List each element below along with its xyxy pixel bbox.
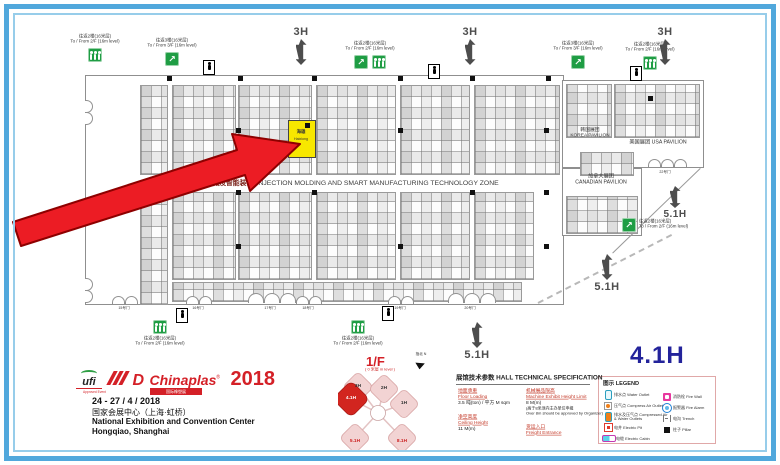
- hall-marker-51h-2: 5.1H: [590, 254, 624, 293]
- up-down-arrow-icon: [602, 254, 613, 280]
- stairs-people-icon: [372, 55, 386, 69]
- elevator-icon: [203, 60, 215, 75]
- logo-cn-strip-text: 国际橡塑展: [166, 389, 186, 395]
- esc-label-en: To / From 3/F (16m level): [553, 45, 602, 50]
- highlight-arrow: [2, 122, 312, 262]
- logo-year: 2018: [231, 368, 276, 390]
- door-label: 19号门: [394, 306, 405, 310]
- door-label: 16号门: [192, 306, 203, 310]
- door-17: [248, 293, 296, 303]
- floor-plan-page: 注塑机械及智能装备INJECTION MOLDING AND SMART MAN…: [0, 0, 780, 465]
- pillar: [312, 190, 317, 195]
- minimap-hall-51h: 5.1H: [350, 438, 360, 443]
- booth-block: [316, 192, 396, 280]
- pillar: [470, 76, 475, 81]
- legend-panel: 图示 LEGEND 排水点 Water Outlet 压气点 Compress …: [598, 376, 716, 444]
- escalator-icon: ↗: [622, 218, 636, 232]
- pillar: [398, 244, 403, 249]
- logo-reg: ®: [216, 375, 220, 381]
- trench-icon: [663, 415, 671, 422]
- spec-freight-cn: 货运入口: [526, 424, 545, 429]
- ufi-text: ufi: [74, 377, 104, 387]
- door-label: 18号门: [302, 306, 313, 310]
- fire-alarm-icon: [662, 403, 672, 413]
- pillar: [167, 76, 172, 81]
- booth-block: [474, 192, 534, 280]
- elevator-icon: [382, 306, 394, 321]
- booth-block-usa: [614, 84, 700, 138]
- pillar: [648, 96, 653, 101]
- spec-ceiling-value: 11 M(m): [458, 426, 476, 431]
- door-20: [448, 293, 496, 303]
- esc-label-en: To / From 2/F (16m level): [70, 38, 119, 43]
- hall-marker-3h-1: 3H: [284, 26, 318, 65]
- stairs-people-icon: [351, 320, 365, 334]
- door-18: [296, 296, 322, 304]
- hall-marker-label: 3H: [657, 26, 672, 38]
- elevator-icon: [176, 308, 188, 323]
- booth-block: [400, 192, 470, 280]
- elevator-icon: [428, 64, 440, 79]
- spec-machine-note-en: Over 8m should be approved by Organizer): [526, 411, 603, 416]
- spec-machine-note-cn: (高于8米须向主办单位申报: [526, 406, 574, 411]
- pillar: [238, 76, 243, 81]
- hall-marker-3h-3: 3H: [648, 26, 682, 65]
- minimap-hall-41h: 4.1H: [346, 395, 356, 400]
- door-label: 15号门: [118, 306, 129, 310]
- legend-title: 图示 LEGEND: [603, 380, 639, 386]
- ufi-logo: ufi Approved Event: [74, 370, 104, 399]
- pillar-icon: [664, 427, 670, 433]
- pillar: [546, 76, 551, 81]
- hall-marker-label: 5.1H: [663, 209, 686, 220]
- spec-machine-en: Machine Exhibit Height Limit: [526, 394, 587, 399]
- escalator-icon: ↗: [354, 55, 368, 69]
- pavilion-label-canada: 加拿大展团CANADIAN PAVILION: [575, 173, 627, 185]
- pavilion-usa-cn: 美国展团: [629, 139, 650, 145]
- minimap-hall-1h: 1H: [401, 400, 407, 405]
- up-down-arrow-icon: [670, 186, 681, 208]
- escalator-icon: ↗: [165, 52, 179, 66]
- spec-floor-en: Floor Loading: [458, 394, 487, 399]
- logo-name: Chinaplas: [149, 372, 216, 388]
- pillar: [544, 190, 549, 195]
- up-down-arrow-icon: [465, 39, 476, 65]
- hall-marker-label: 3H: [462, 26, 477, 38]
- north-arrow-icon: [415, 359, 426, 370]
- legend-label: 电沟 Trench: [673, 417, 728, 421]
- minimap-hall-81h: 8.1H: [397, 438, 407, 443]
- spec-machine-value: 8 M(m): [526, 400, 541, 405]
- door-19: [388, 296, 414, 304]
- door-22: [648, 159, 687, 167]
- spec-freight-en: Freight Entrance: [526, 430, 561, 435]
- esc-label-en: To / From 2/F (16m level): [345, 45, 394, 50]
- legend-label: 柱子 Pillar: [673, 428, 728, 432]
- minimap-hall-3h: 3H: [355, 383, 361, 388]
- minimap-hall-2h: 2H: [381, 385, 387, 390]
- door-label: 22号门: [659, 170, 670, 174]
- hall-label-41h: 4.1H: [630, 342, 685, 370]
- logo-cn-strip: 国际橡塑展: [150, 388, 202, 395]
- hall-marker-51h-1: 5.1H: [460, 322, 494, 361]
- compass-label: 指北 N: [416, 352, 427, 356]
- pillar: [544, 128, 549, 133]
- escalator-icon: ↗: [571, 55, 585, 69]
- spec-floor-cn: 地面承重: [458, 388, 477, 393]
- door-15: [112, 296, 138, 304]
- spec-ceiling-cn: 净空高度: [458, 414, 477, 419]
- up-down-arrow-icon: [660, 39, 671, 65]
- air-and-water-outlets-icon: [605, 412, 612, 422]
- fire-wall-icon: [663, 393, 671, 401]
- pavilion-canada-en: CANADIAN PAVILION: [575, 179, 627, 185]
- pillar: [470, 190, 475, 195]
- up-down-arrow-icon: [296, 39, 307, 65]
- stairs-people-icon: [153, 320, 167, 334]
- spec-machine-cn: 机械展品限高: [526, 388, 555, 393]
- esc-label-en: To / From 2/F (16m level): [639, 223, 688, 228]
- door-label: 17号门: [264, 306, 275, 310]
- pillar: [398, 128, 403, 133]
- pillar: [312, 76, 317, 81]
- pillar: [398, 76, 403, 81]
- esc-label-en: To / From 2/F (16m level): [333, 340, 382, 345]
- booth-block: [316, 85, 396, 175]
- venue-city: Hongqiao, Shanghai: [92, 427, 169, 436]
- spec-floor-value: 3.5 吨(ton) / 平方 M sqm: [458, 400, 510, 405]
- hall-marker-label: 5.1H: [594, 281, 619, 293]
- legend-label: 消防栓 Fire Wall: [673, 395, 728, 399]
- legend-right-column: 消防栓 Fire Wall 报警器 Fire Alarm 电沟 Trench 柱…: [661, 391, 780, 435]
- water-outlet-icon: [605, 390, 612, 400]
- door-16: [186, 296, 212, 304]
- pavilion-label-usa: 美国展团 USA PAVILION: [629, 139, 686, 145]
- door-label: 20号门: [464, 306, 475, 310]
- esc-label-en: To / From 2/F (16m level): [135, 340, 184, 345]
- hall-marker-label: 3H: [293, 26, 308, 38]
- spec-ceiling-en: Ceiling Height: [458, 420, 488, 425]
- pavilion-usa-en: USA PAVILION: [652, 139, 687, 145]
- pavilion-korea-en: KOREA PAVILION: [570, 132, 609, 137]
- esc-label-en: To / From 3/F (16m level): [147, 42, 196, 47]
- electric-cabin-icon: [602, 435, 616, 442]
- event-dates: 24 - 27 / 4 / 2018: [92, 396, 160, 406]
- legend-label: 电缆 Electric Cabin: [616, 437, 671, 441]
- up-down-arrow-icon: [472, 322, 483, 348]
- spec-title: 展馆技术参数 HALL TECHNICAL SPECIFICATION: [456, 374, 603, 381]
- ufi-subtext: Approved Event: [83, 390, 95, 394]
- hall-marker-label: 5.1H: [464, 349, 489, 361]
- pavilion-label-korea: 韩国展团KOREA PAVILION: [570, 127, 609, 138]
- hall-marker-3h-2: 3H: [453, 26, 487, 65]
- elevator-icon: [630, 66, 642, 81]
- compressed-air-outlet-icon: [604, 402, 612, 410]
- electric-pit-icon: [604, 423, 613, 432]
- logo-d: D: [132, 372, 144, 389]
- stairs-people-icon: [88, 48, 102, 62]
- hall-marker-51h-3: 5.1H: [658, 186, 692, 220]
- legend-label: 报警器 Fire Alarm: [673, 406, 728, 410]
- pillar: [544, 244, 549, 249]
- minimap-subtitle: ( 0 米层 m level ): [365, 367, 395, 372]
- venue-en: National Exhibition and Convention Cente…: [92, 417, 255, 426]
- booth-block: [400, 85, 470, 175]
